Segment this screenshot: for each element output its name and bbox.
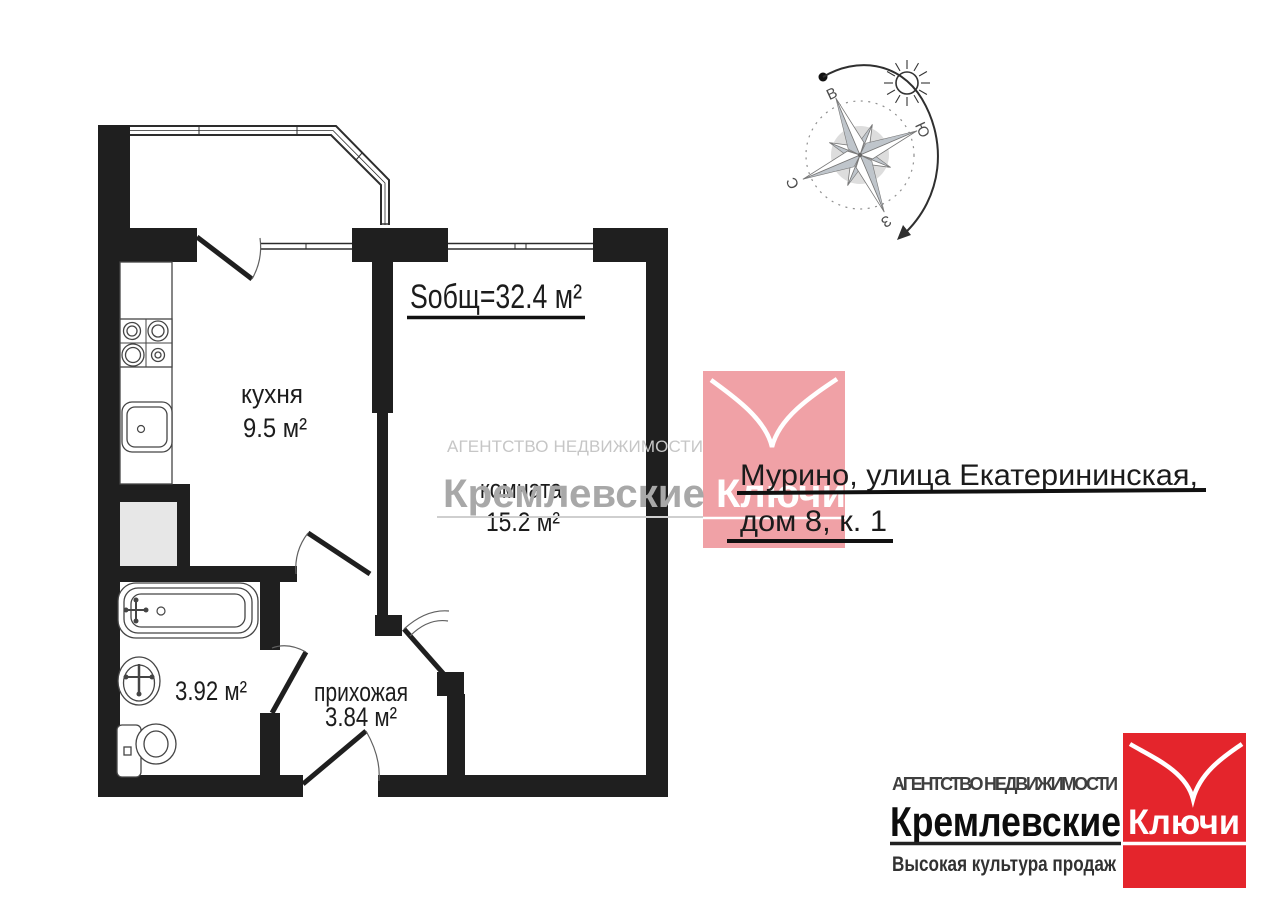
logo-brand-text: Кремлевские xyxy=(890,798,1121,845)
wall-segment xyxy=(372,262,393,413)
room-door xyxy=(404,611,449,680)
kitchen-label: кухня xyxy=(241,379,303,409)
balcony-door xyxy=(197,237,261,279)
wall-segment xyxy=(98,484,190,502)
logo-agency-text: АГЕНТСТВО НЕДВИЖИМОСТИ xyxy=(892,774,1118,794)
compass-label-south: Ю xyxy=(911,120,933,141)
bathroom-area-label: 3.92 м² xyxy=(175,676,247,706)
hallway-area-label: 3.84 м² xyxy=(325,702,397,732)
toilet-icon xyxy=(117,724,176,777)
kitchen-sink-icon xyxy=(122,402,172,452)
room-window xyxy=(448,244,593,250)
agency-logo: АГЕНТСТВО НЕДВИЖИМОСТИ Кремлевские Высок… xyxy=(890,733,1246,888)
washbasin-icon xyxy=(118,657,160,705)
watermark-brand-gray: Кремлевские xyxy=(443,472,705,516)
wall-segment xyxy=(377,413,388,617)
bathtub-icon xyxy=(118,583,258,638)
compass-label-west: З xyxy=(878,211,894,230)
total-area-label: Sобщ=32.4 м² xyxy=(410,278,582,316)
stove-icon xyxy=(120,319,172,367)
wall-segment xyxy=(98,775,303,797)
vent-shaft xyxy=(120,502,177,566)
wall-segment xyxy=(378,775,668,797)
address-line2: дом 8, к. 1 xyxy=(740,505,887,538)
compass-label-north: С xyxy=(783,174,803,191)
compass-star xyxy=(779,74,942,237)
wall-segment xyxy=(375,615,402,636)
floor-plan-page: кухня 9.5 м² комната 15.2 м² прихожая 3.… xyxy=(0,0,1280,924)
wall-segment xyxy=(98,228,197,262)
balcony-glazing xyxy=(128,126,389,225)
wall-segment xyxy=(437,672,464,696)
wall-segment xyxy=(352,228,448,262)
bathroom-door xyxy=(272,646,306,713)
kitchen-window xyxy=(260,244,352,250)
kitchen-area-label: 9.5 м² xyxy=(243,413,307,443)
logo-brand-accent-text: Ключи xyxy=(1128,803,1240,842)
entrance-door xyxy=(303,731,379,784)
floor-plan-canvas: кухня 9.5 м² комната 15.2 м² прихожая 3.… xyxy=(0,0,1280,924)
wall-segment xyxy=(260,713,280,775)
wall-segment xyxy=(260,566,280,650)
wall-segment xyxy=(447,694,465,775)
address-line1: Мурино, улица Екатерининская, xyxy=(740,459,1198,492)
watermark-agency-text: АГЕНТСТВО НЕДВИЖИМОСТИ xyxy=(447,437,703,456)
logo-tagline: Высокая культура продаж xyxy=(892,853,1117,876)
kitchen-door xyxy=(296,533,370,574)
floor-plan: кухня 9.5 м² комната 15.2 м² прихожая 3.… xyxy=(98,125,668,797)
compass-rose-icon: В Ю С З xyxy=(779,60,942,240)
